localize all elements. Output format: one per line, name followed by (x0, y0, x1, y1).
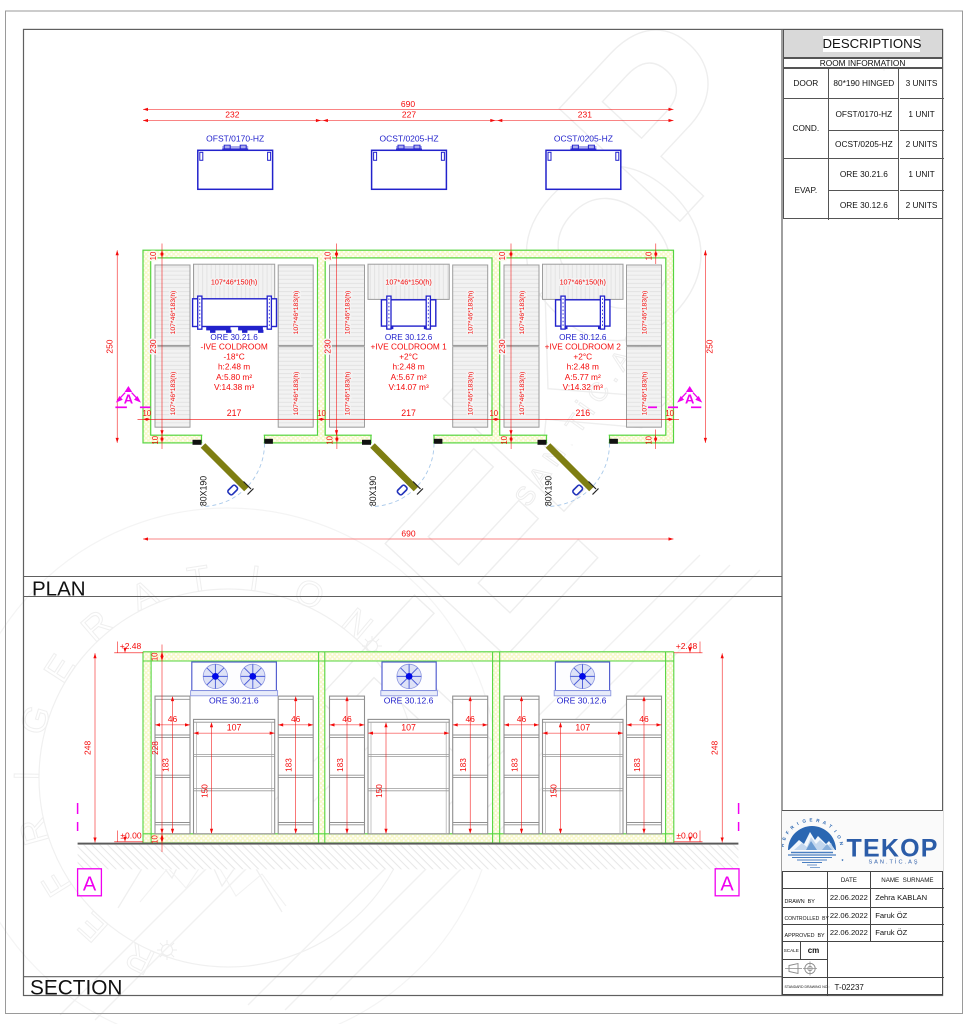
svg-text:+2.48: +2.48 (120, 641, 142, 651)
svg-text:F: F (33, 864, 79, 904)
svg-text:A: A (685, 392, 695, 407)
svg-text:PLAN: PLAN (32, 577, 86, 600)
svg-text:E: E (809, 818, 812, 823)
svg-text:10: 10 (500, 435, 509, 444)
svg-text:R: R (816, 818, 821, 824)
svg-text:A:5.77 m²: A:5.77 m² (565, 372, 601, 382)
svg-text:10: 10 (151, 435, 160, 444)
svg-text:10: 10 (489, 409, 498, 418)
svg-text:248: 248 (709, 740, 719, 754)
svg-text:107*46*150(h): 107*46*150(h) (211, 277, 257, 286)
svg-text:G: G (11, 700, 58, 739)
svg-text:I: I (796, 821, 799, 826)
svg-text:-IVE COLDROOM: -IVE COLDROOM (200, 341, 267, 351)
svg-text:ORE 30.21.6: ORE 30.21.6 (209, 696, 259, 706)
svg-text:107*46*150(h): 107*46*150(h) (385, 277, 431, 286)
svg-text:h:2.48 m: h:2.48 m (567, 362, 599, 372)
svg-text:230: 230 (323, 339, 333, 353)
svg-text:107*46*183(h): 107*46*183(h) (345, 291, 352, 335)
svg-text:107*46*183(h): 107*46*183(h) (519, 372, 526, 416)
svg-text:232: 232 (225, 110, 239, 120)
svg-text:F: F (785, 830, 791, 835)
svg-text:10: 10 (498, 251, 507, 260)
svg-text:OCST/0205-HZ: OCST/0205-HZ (379, 134, 438, 144)
svg-text:10: 10 (149, 251, 158, 260)
svg-text:217: 217 (227, 408, 242, 418)
svg-text:G: G (802, 818, 807, 824)
svg-text:OCST/0205-HZ: OCST/0205-HZ (554, 134, 613, 144)
svg-text:250: 250 (105, 339, 115, 353)
svg-text:A:5.67 m²: A:5.67 m² (391, 372, 427, 382)
svg-text:A: A (822, 820, 828, 826)
svg-text:150: 150 (375, 784, 384, 798)
svg-text:E: E (35, 647, 82, 689)
svg-text:690: 690 (401, 99, 415, 109)
svg-text:ORE 30.12.6: ORE 30.12.6 (384, 696, 434, 706)
svg-text:+2°C: +2°C (399, 352, 418, 362)
svg-text:10: 10 (645, 251, 654, 260)
svg-text:107*46*183(h): 107*46*183(h) (519, 291, 526, 335)
svg-text:R: R (782, 843, 785, 848)
svg-text:A: A (124, 392, 134, 407)
svg-text:228: 228 (151, 741, 160, 755)
svg-text:10: 10 (326, 435, 335, 444)
svg-text:E: E (70, 904, 115, 951)
svg-text:O: O (836, 835, 842, 841)
svg-text:80X190: 80X190 (199, 476, 209, 506)
svg-text:SECTION: SECTION (30, 976, 122, 999)
svg-text:±0.00: ±0.00 (676, 830, 697, 840)
svg-text:107*46*183(h): 107*46*183(h) (293, 372, 300, 416)
svg-text:+IVE COLDROOM 1: +IVE COLDROOM 1 (370, 341, 447, 351)
svg-text:107: 107 (227, 722, 242, 732)
svg-text:107*46*183(h): 107*46*183(h) (293, 291, 300, 335)
svg-text:80X190: 80X190 (368, 476, 378, 506)
svg-text:h:2.48 m: h:2.48 m (218, 362, 250, 372)
svg-text:107*46*183(h): 107*46*183(h) (170, 291, 177, 335)
svg-text:183: 183 (633, 758, 642, 772)
svg-text:183: 183 (511, 758, 520, 772)
svg-text:10: 10 (324, 251, 333, 260)
svg-text:R: R (73, 602, 119, 650)
svg-text:V:14.38 m³: V:14.38 m³ (214, 382, 255, 392)
svg-text:107*46*183(h): 107*46*183(h) (170, 372, 177, 416)
svg-text:I: I (247, 557, 262, 599)
svg-text:-18°C: -18°C (223, 352, 244, 362)
svg-text:107*46*183(h): 107*46*183(h) (345, 372, 352, 416)
svg-text:231: 231 (578, 110, 592, 120)
svg-text:230: 230 (148, 339, 158, 353)
svg-text:107*46*183(h): 107*46*183(h) (468, 372, 475, 416)
svg-text:+2°C: +2°C (573, 352, 592, 362)
svg-text:ORE 30.12.6: ORE 30.12.6 (557, 696, 607, 706)
svg-text:A: A (720, 874, 734, 896)
svg-text:±0.00: ±0.00 (120, 830, 141, 840)
svg-text:V:14.32 m³: V:14.32 m³ (563, 382, 604, 392)
svg-text:R: R (789, 824, 795, 830)
svg-text:107*46*183(h): 107*46*183(h) (642, 372, 649, 416)
svg-text:SAN.TİC.AŞ: SAN.TİC.AŞ (868, 859, 919, 866)
svg-text:V:14.07 m³: V:14.07 m³ (388, 382, 429, 392)
svg-text:A:5.80 m²: A:5.80 m² (216, 372, 252, 382)
svg-text:E: E (782, 837, 787, 842)
svg-text:OFST/0170-HZ: OFST/0170-HZ (206, 134, 264, 144)
svg-text:216: 216 (575, 408, 590, 418)
svg-text:T: T (828, 824, 833, 830)
svg-text:230: 230 (497, 339, 507, 353)
svg-text:TEKOP: TEKOP (847, 835, 939, 863)
svg-text:107*46*183(h): 107*46*183(h) (642, 291, 649, 335)
svg-text:183: 183 (162, 758, 171, 772)
svg-text:10: 10 (317, 409, 326, 418)
svg-text:T: T (184, 557, 212, 601)
svg-text:10: 10 (644, 435, 653, 444)
svg-text:107*46*183(h): 107*46*183(h) (468, 291, 475, 335)
svg-text:10: 10 (151, 652, 160, 661)
svg-text:690: 690 (401, 529, 415, 539)
svg-text:183: 183 (285, 758, 294, 772)
svg-text:R: R (11, 814, 57, 850)
svg-text:A: A (83, 874, 97, 896)
svg-text:183: 183 (459, 758, 468, 772)
svg-text:217: 217 (401, 408, 416, 418)
svg-text:10: 10 (665, 409, 674, 418)
svg-text:A: A (124, 571, 163, 618)
svg-text:183: 183 (336, 758, 345, 772)
svg-text:150: 150 (549, 784, 558, 798)
svg-text:*: * (842, 859, 844, 865)
svg-text:107: 107 (575, 722, 590, 732)
svg-text:248: 248 (82, 740, 92, 754)
svg-text:10: 10 (142, 409, 151, 418)
svg-text:N: N (838, 842, 844, 847)
svg-text:+IVE COLDROOM 2: +IVE COLDROOM 2 (545, 341, 622, 351)
svg-text:227: 227 (402, 110, 416, 120)
svg-text:I: I (6, 770, 47, 781)
svg-text:107: 107 (401, 722, 416, 732)
svg-text:250: 250 (704, 339, 714, 353)
svg-text:I: I (833, 829, 838, 833)
svg-text:+2.48: +2.48 (676, 641, 698, 651)
svg-text:80X190: 80X190 (544, 476, 554, 506)
svg-text:150: 150 (200, 784, 209, 798)
svg-text:10: 10 (151, 835, 160, 844)
svg-text:107*46*150(h): 107*46*150(h) (560, 277, 606, 286)
svg-text:h:2.48 m: h:2.48 m (392, 362, 424, 372)
